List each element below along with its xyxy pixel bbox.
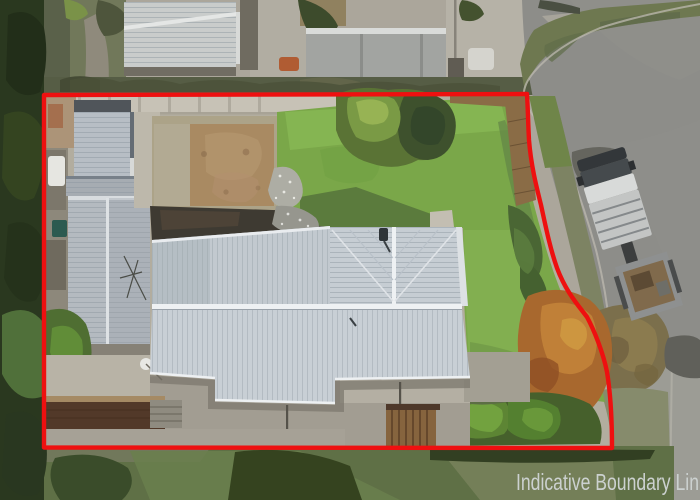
svg-text:Indicative Boundary Lin: Indicative Boundary Lin bbox=[516, 469, 699, 495]
